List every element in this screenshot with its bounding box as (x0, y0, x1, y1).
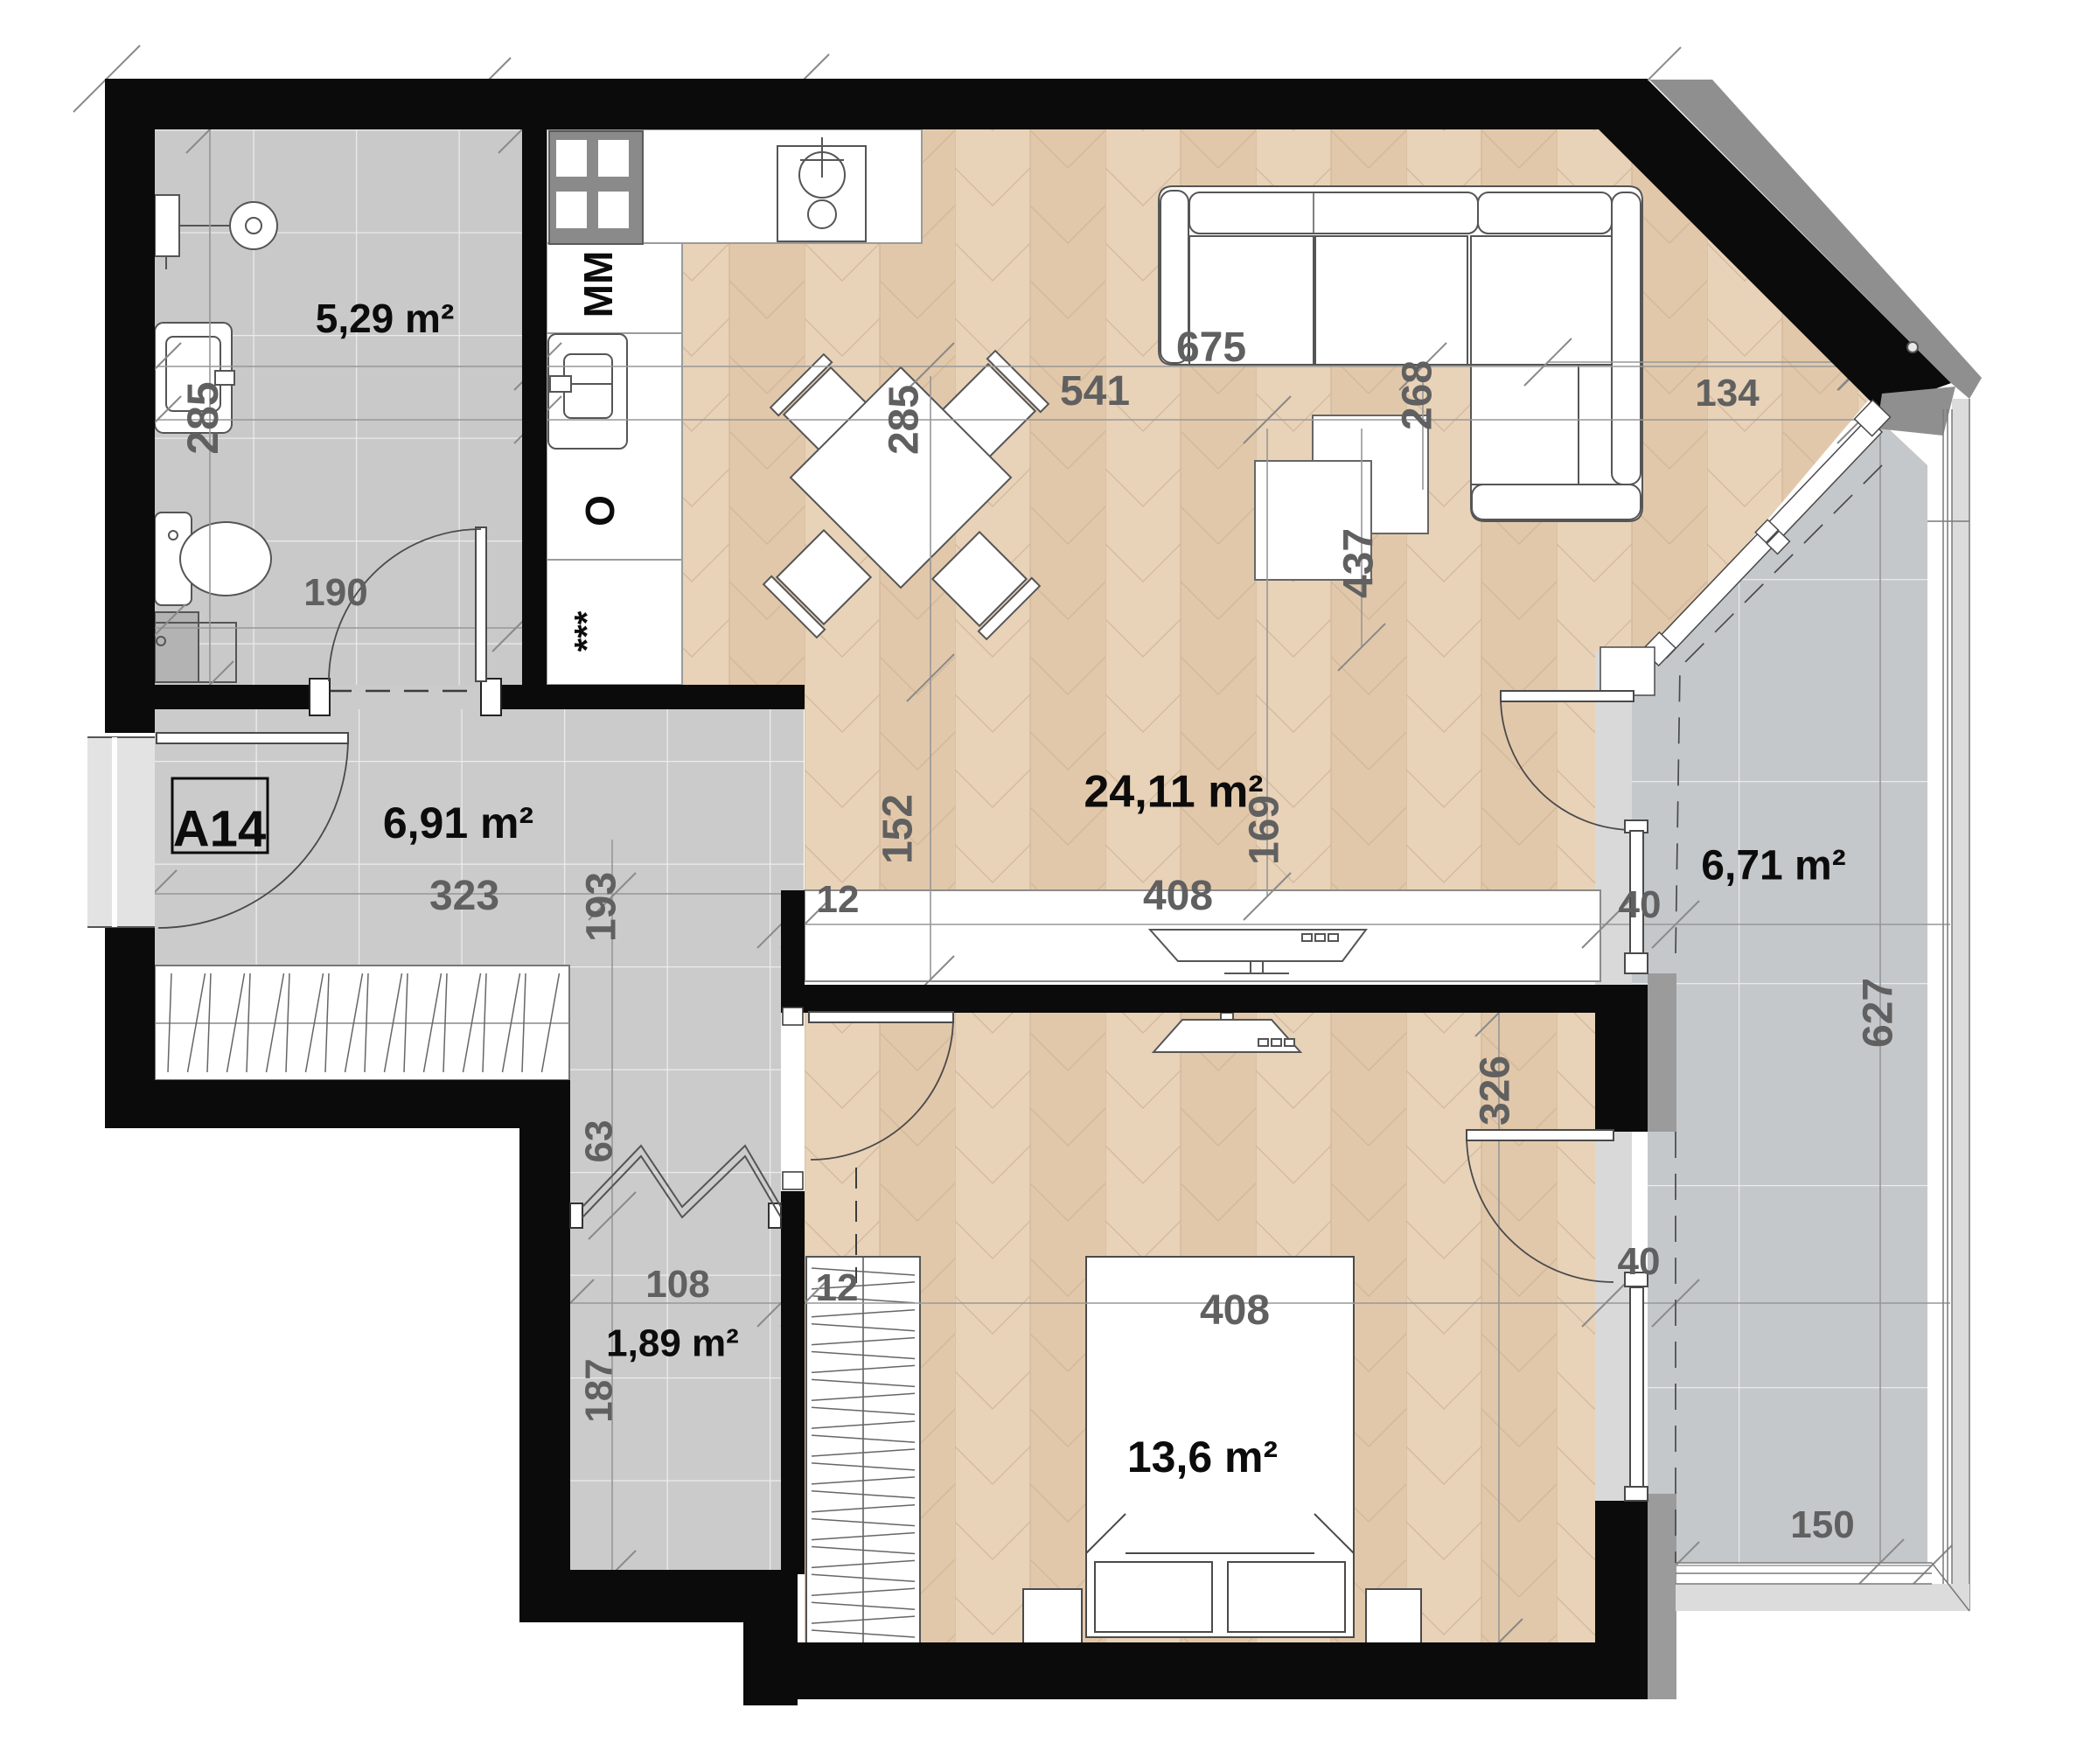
svg-text:190: 190 (303, 571, 367, 614)
svg-text:***: *** (568, 610, 607, 652)
svg-text:24,11 m²: 24,11 m² (1084, 767, 1263, 818)
svg-text:169: 169 (1242, 795, 1288, 865)
svg-text:187: 187 (578, 1358, 621, 1422)
svg-text:675: 675 (1176, 324, 1246, 371)
svg-text:108: 108 (645, 1263, 709, 1306)
svg-text:O: O (577, 495, 623, 526)
svg-text:193: 193 (579, 872, 625, 942)
svg-text:408: 408 (1200, 1287, 1270, 1334)
svg-text:MM: MM (575, 251, 621, 318)
svg-text:152: 152 (875, 794, 922, 864)
svg-text:150: 150 (1790, 1503, 1854, 1546)
svg-text:541: 541 (1060, 368, 1130, 415)
svg-text:285: 285 (178, 381, 227, 454)
svg-text:627: 627 (1856, 978, 1902, 1048)
svg-text:323: 323 (429, 873, 499, 919)
svg-text:6,71 m²: 6,71 m² (1701, 843, 1845, 889)
svg-text:408: 408 (1143, 873, 1213, 919)
svg-text:12: 12 (816, 1266, 859, 1309)
svg-text:437: 437 (1336, 528, 1383, 598)
svg-text:12: 12 (817, 878, 860, 921)
svg-text:63: 63 (578, 1120, 621, 1163)
svg-text:326: 326 (1473, 1056, 1519, 1126)
svg-text:6,91 m²: 6,91 m² (383, 798, 533, 847)
svg-text:268: 268 (1395, 360, 1441, 430)
svg-text:40: 40 (1619, 883, 1662, 926)
svg-text:13,6 m²: 13,6 m² (1127, 1433, 1278, 1482)
svg-text:285: 285 (882, 385, 928, 455)
svg-text:5,29 m²: 5,29 m² (316, 296, 455, 341)
svg-text:A14: A14 (173, 800, 266, 857)
svg-text:40: 40 (1618, 1240, 1661, 1283)
svg-text:134: 134 (1695, 372, 1760, 415)
svg-text:1,89 m²: 1,89 m² (606, 1322, 739, 1365)
